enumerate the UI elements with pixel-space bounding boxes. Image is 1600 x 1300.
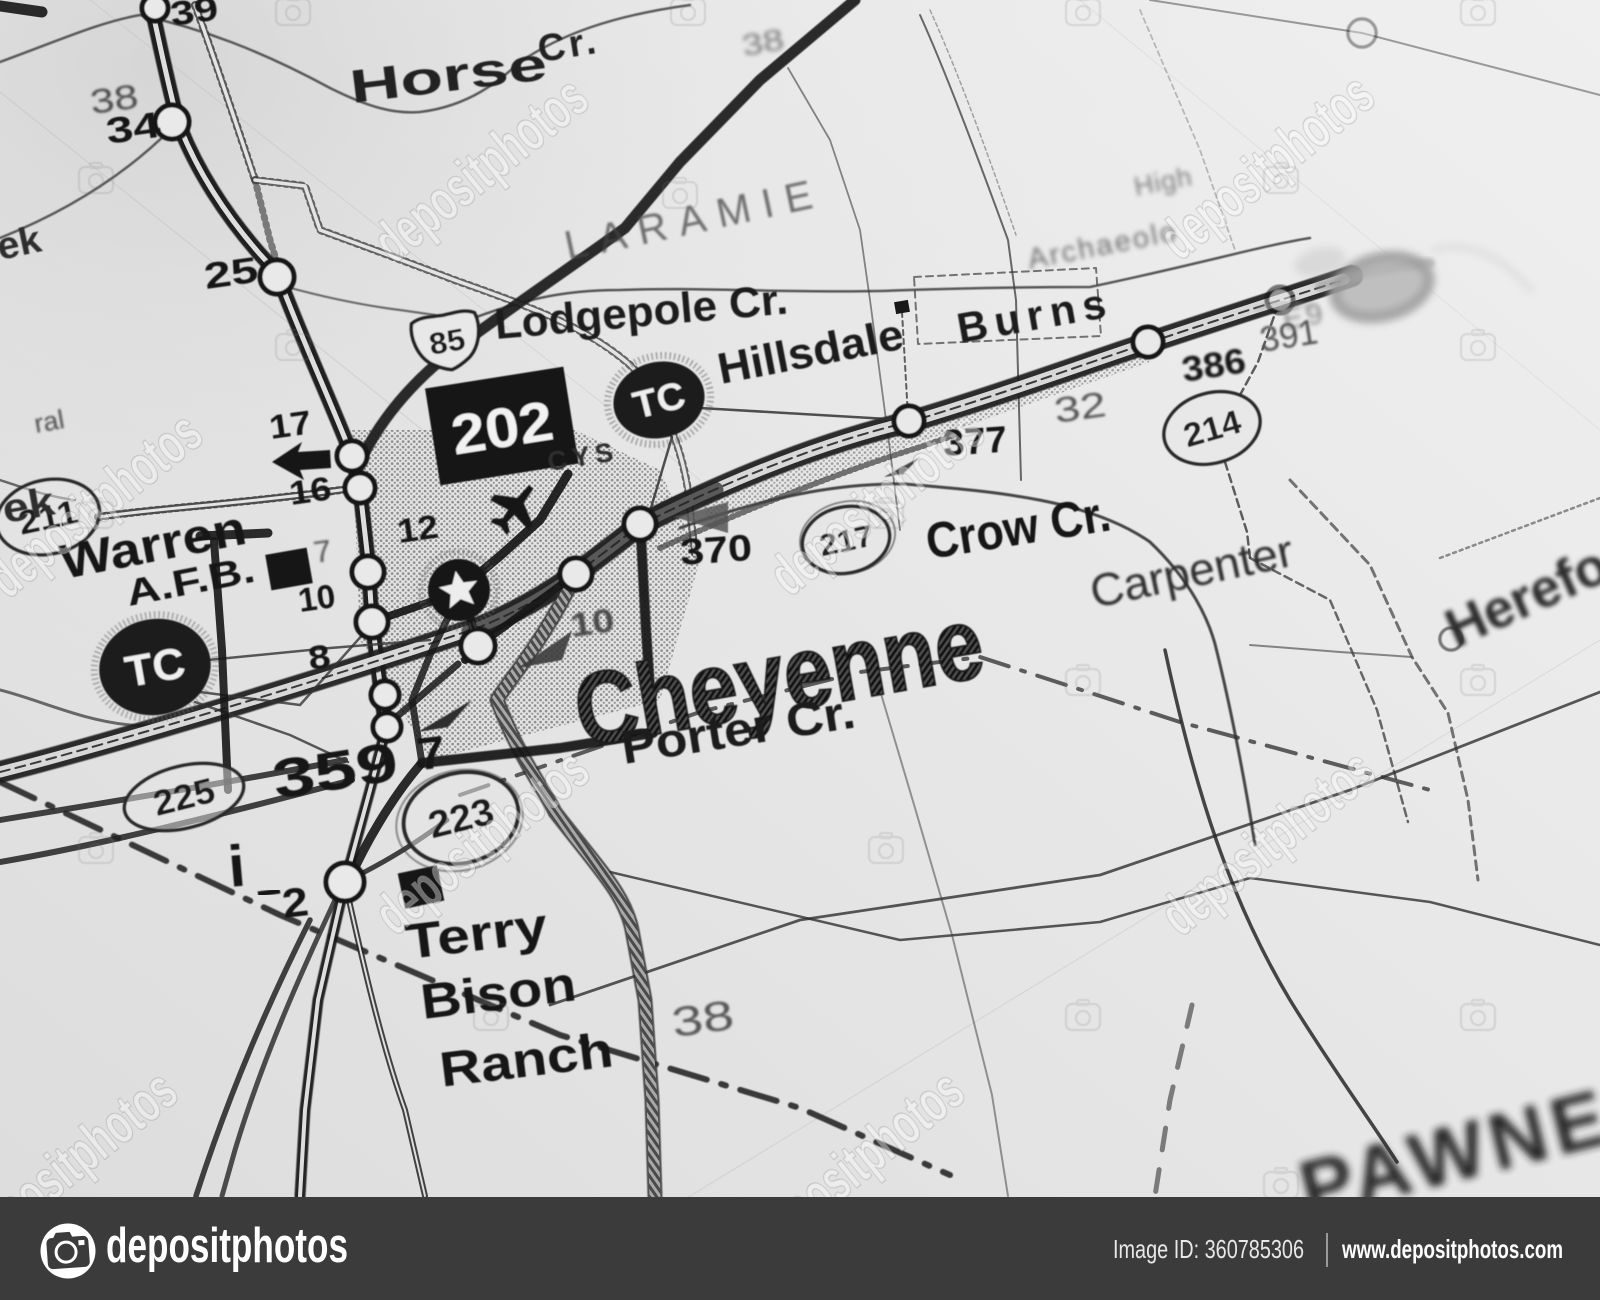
svg-text:2: 2: [279, 878, 310, 927]
svg-text:depositphotos: depositphotos: [106, 1219, 348, 1273]
svg-text:10: 10: [568, 601, 617, 644]
svg-text:34: 34: [103, 104, 162, 152]
svg-text:TC: TC: [121, 638, 189, 697]
svg-text:www.depositphotos.com: www.depositphotos.com: [1341, 1234, 1563, 1264]
svg-text:12: 12: [395, 508, 441, 550]
svg-text:32: 32: [1052, 385, 1109, 431]
svg-text:10: 10: [296, 577, 338, 619]
svg-text:25: 25: [201, 249, 260, 297]
svg-text:85: 85: [426, 321, 468, 362]
svg-text:17: 17: [267, 403, 314, 445]
svg-text:16: 16: [287, 469, 334, 511]
svg-text:38: 38: [669, 991, 737, 1046]
svg-text:Image ID: 360785306: Image ID: 360785306: [1113, 1234, 1304, 1264]
svg-text:ral: ral: [32, 404, 67, 439]
svg-text:370: 370: [679, 527, 754, 573]
